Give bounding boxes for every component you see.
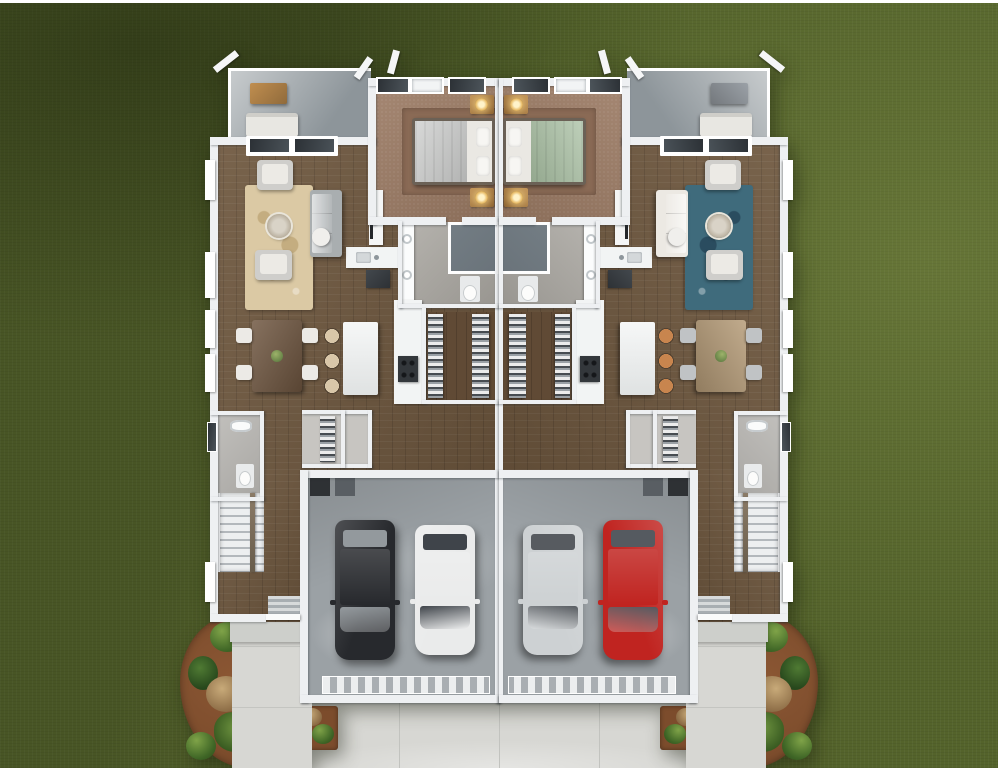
refrigerator [608, 270, 632, 288]
bathroom-wall [398, 221, 402, 308]
area-rug [245, 185, 313, 310]
front-porch-step [686, 622, 768, 642]
car-mirror [474, 599, 480, 604]
bedroom-window [588, 77, 622, 94]
laundry-wall [626, 410, 696, 414]
car-roof [608, 549, 657, 605]
garage-wall-south [499, 695, 698, 703]
bedroom-wall-south [552, 217, 630, 225]
car-outer [603, 520, 663, 660]
shelving [663, 416, 678, 462]
side-window [205, 562, 215, 602]
bedroom-window [410, 77, 444, 94]
car-mirror [582, 599, 588, 604]
closet-wall [422, 400, 499, 404]
armchair [706, 250, 743, 280]
blanket [415, 121, 467, 182]
stair-railing [250, 493, 255, 572]
duplex-building [0, 0, 998, 768]
double-vanity [400, 222, 414, 304]
front-door [266, 614, 300, 620]
powder-wall [260, 411, 264, 501]
side-window [205, 160, 215, 200]
dining-chairs [746, 328, 762, 380]
garage-wall-west [300, 470, 308, 703]
bedroom-window [512, 77, 550, 94]
powder-window [781, 422, 791, 452]
shrub [782, 732, 812, 760]
car-mirror [662, 600, 668, 605]
nightstand-with-lamp [470, 95, 494, 114]
side-window [783, 310, 793, 348]
toilet [460, 276, 480, 302]
island-stools [658, 328, 674, 394]
armchair [257, 160, 293, 190]
shrub [186, 732, 216, 760]
bedroom-wall-west [368, 78, 376, 225]
laundry-wall [626, 410, 630, 468]
kitchen-counter [394, 300, 422, 404]
entry-door-mat [268, 596, 302, 614]
stove [580, 356, 600, 382]
laundry-wall [626, 464, 696, 468]
kitchen-counter [576, 300, 604, 404]
kitchen-sink-counter [346, 247, 398, 268]
clothes-rack [428, 314, 443, 398]
car-rear-window [423, 534, 467, 550]
garage-wall-north [499, 470, 698, 478]
bedroom-wall-west [622, 78, 630, 225]
bedroom-wall-south [368, 217, 446, 225]
laundry-wall [302, 464, 372, 468]
garage-wall-west [690, 470, 698, 703]
blanket [531, 121, 583, 182]
car-windshield [340, 607, 390, 632]
powder-sink [746, 420, 768, 432]
side-window [783, 354, 793, 392]
powder-wall [734, 497, 788, 501]
closet-wall [422, 308, 426, 404]
patio-bench [700, 113, 752, 137]
dwelling-unit-left [210, 56, 499, 708]
powder-wall [734, 411, 788, 415]
ottoman [312, 228, 330, 246]
side-window [783, 562, 793, 602]
area-rug [685, 185, 753, 310]
nightstand-with-lamp [504, 95, 528, 114]
side-window [783, 252, 793, 298]
coffee-table [707, 214, 731, 238]
laundry-divider-wall [341, 410, 345, 468]
nightstand-with-lamp [470, 188, 494, 207]
car-rear-window [531, 534, 575, 550]
bed [503, 118, 586, 185]
entry-door-mat [696, 596, 730, 614]
side-window [205, 354, 215, 392]
refrigerator [366, 270, 390, 288]
bathroom-wall [499, 304, 600, 308]
closet-wall [572, 308, 576, 404]
car-mirror [598, 600, 604, 605]
party-wall [499, 78, 503, 703]
powder-toilet [744, 464, 762, 488]
water-heater-units [310, 476, 356, 497]
kitchen-island [343, 322, 378, 395]
mattress [415, 121, 492, 182]
garage-door [508, 676, 676, 694]
ottoman [668, 228, 686, 246]
living-room-windows [660, 136, 752, 156]
powder-wall [210, 411, 264, 415]
bed [412, 118, 495, 185]
car-mirror [330, 600, 336, 605]
armchair [255, 250, 292, 280]
toilet [518, 276, 538, 302]
car-windshield [420, 606, 470, 629]
car-inner [523, 525, 583, 655]
shrub [664, 724, 686, 744]
car-rear-window [343, 530, 387, 547]
stove [398, 356, 418, 382]
laundry-wall [368, 410, 372, 468]
patio-table [250, 83, 287, 104]
kitchen-sink-counter [600, 247, 652, 268]
coffee-table [267, 214, 291, 238]
sofa [310, 190, 342, 257]
staircase [217, 493, 264, 572]
powder-sink [230, 420, 252, 432]
car-outer [335, 520, 395, 660]
bedroom-wall-south [462, 217, 499, 225]
front-walkway [686, 642, 766, 768]
laundry-divider-wall [653, 410, 657, 468]
shower [497, 222, 550, 274]
powder-wall [734, 411, 738, 501]
kitchen-island [620, 322, 655, 395]
roof-gable-end [387, 50, 400, 75]
shelving [320, 416, 335, 462]
clothes-rack [472, 314, 489, 398]
staircase [734, 493, 781, 572]
bedroom-window [448, 77, 486, 94]
car-mirror [410, 599, 416, 604]
side-window [783, 160, 793, 200]
car-roof [420, 552, 469, 604]
shower [448, 222, 501, 274]
water-heater-units [642, 476, 688, 497]
stair-railing [743, 493, 748, 572]
garage-wall-north [300, 470, 499, 478]
bedroom-window [554, 77, 588, 94]
car-mirror [518, 599, 524, 604]
garage-door [322, 676, 490, 694]
clothes-rack [555, 314, 570, 398]
nightstand-with-lamp [504, 188, 528, 207]
patio-table [711, 83, 748, 104]
garage-wall-south [300, 695, 499, 703]
roof-gable-end [598, 50, 611, 75]
bathroom-wall [596, 221, 600, 308]
car-windshield [608, 607, 658, 632]
laundry-wall [302, 410, 372, 414]
side-window [205, 252, 215, 298]
dining-table [696, 320, 746, 392]
powder-window [207, 422, 217, 452]
sofa [656, 190, 688, 257]
shrub [312, 724, 334, 744]
mattress [506, 121, 583, 182]
front-wall [210, 614, 266, 622]
powder-toilet [236, 464, 254, 488]
patio-bench [246, 113, 298, 137]
car-mirror [394, 600, 400, 605]
bedroom-window [376, 77, 410, 94]
bedroom-wall-south [499, 217, 536, 225]
car-roof [528, 552, 577, 604]
front-door [698, 614, 732, 620]
closet-wall [499, 400, 576, 404]
powder-wall [210, 497, 264, 501]
dining-chairs [680, 328, 696, 380]
floor-plan-rendering [0, 0, 998, 768]
laundry-closet [302, 414, 368, 464]
front-wall [732, 614, 788, 622]
armchair [705, 160, 741, 190]
dining-table [252, 320, 302, 392]
side-window [205, 310, 215, 348]
dining-chairs [302, 328, 318, 380]
dwelling-unit-right [499, 56, 788, 708]
dining-chairs [236, 328, 252, 380]
car-inner [415, 525, 475, 655]
clothes-rack [509, 314, 526, 398]
car-rear-window [611, 530, 655, 547]
living-room-windows [246, 136, 338, 156]
car-roof [340, 549, 389, 605]
bathroom-wall [398, 304, 499, 308]
island-stools [324, 328, 340, 394]
car-windshield [528, 606, 578, 629]
